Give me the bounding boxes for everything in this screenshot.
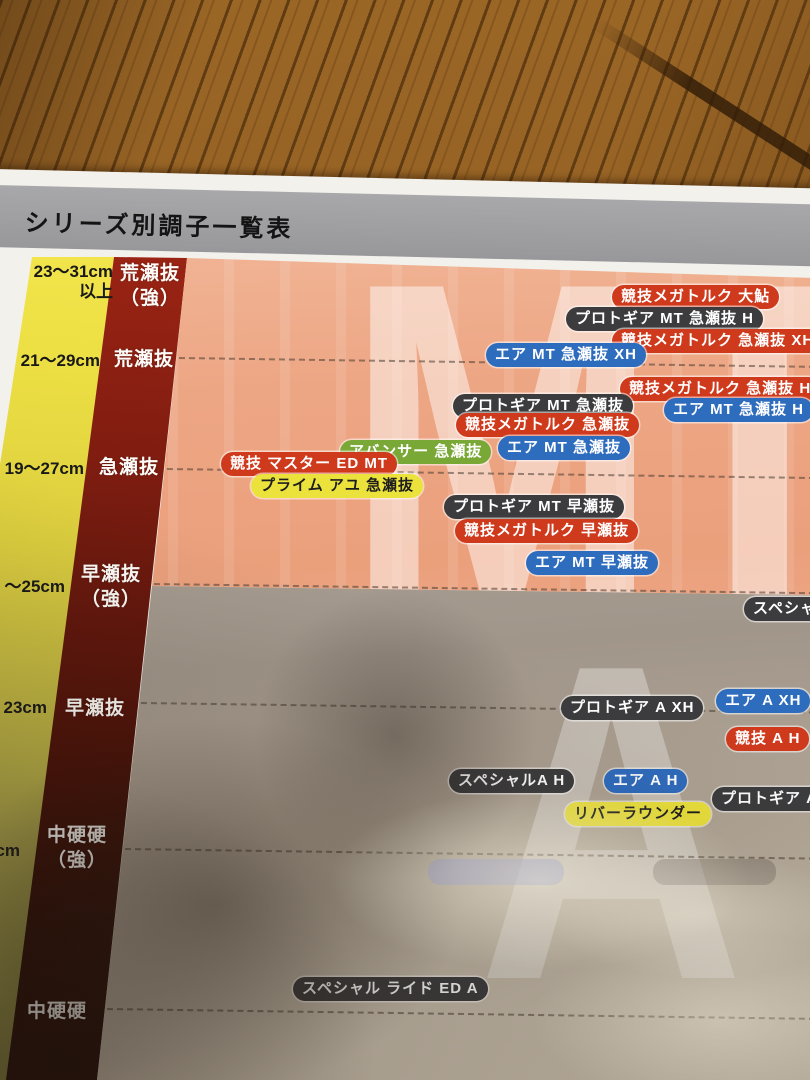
- product-pill: エア MT 早瀬抜: [526, 551, 658, 575]
- product-pill: スペシャル ライド ED A: [293, 977, 488, 1001]
- product-pill: スペシャル: [744, 597, 810, 621]
- product-pill: [428, 859, 564, 885]
- product-pill: プロトギア A: [712, 787, 810, 811]
- category-label: 早瀬抜 （強）: [46, 563, 176, 612]
- product-pill: プロトギア MT 急瀬抜 H: [566, 307, 763, 331]
- product-pill: 競技メガトルク 急瀬抜 H: [620, 377, 810, 401]
- product-pill: 競技メガトルク 早瀬抜: [455, 519, 638, 543]
- category-label: 荒瀬抜 （強）: [85, 262, 215, 311]
- product-pill: 競技 A H: [726, 727, 809, 751]
- product-pill: エア MT 急瀬抜 H: [664, 398, 810, 422]
- product-pill: エア A H: [604, 769, 687, 793]
- product-pill: 競技 マスター ED MT: [221, 452, 397, 476]
- product-pill: エア A XH: [716, 689, 810, 713]
- category-label: 中硬硬: [0, 1000, 122, 1025]
- category-label: 早瀬抜: [30, 697, 160, 722]
- photo-of-chart: シリーズ別調子一覧表 MT A 23〜31cm 以上荒瀬抜 （強）21〜29cm…: [0, 0, 810, 1080]
- product-pill: エア MT 急瀬抜: [498, 436, 630, 460]
- product-pill: プロトギア A XH: [561, 696, 703, 720]
- product-pill: エア MT 急瀬抜 XH: [486, 343, 646, 367]
- product-pill: 競技メガトルク 急瀬抜: [456, 413, 639, 437]
- product-pill: 競技メガトルク 大鮎: [612, 285, 779, 309]
- product-pill: プロトギア MT 早瀬抜: [444, 495, 624, 519]
- category-label: 荒瀬抜: [79, 348, 209, 373]
- category-label: 中硬硬 （強）: [12, 824, 142, 873]
- chart-area: MT A 23〜31cm 以上荒瀬抜 （強）21〜29cm荒瀬抜19〜27cm急…: [0, 0, 810, 1080]
- product-pill: [653, 859, 776, 885]
- product-pill: プライム アユ 急瀬抜: [251, 474, 423, 498]
- product-pill: リバーラウンダー: [565, 802, 711, 826]
- product-pill: スペシャルA H: [449, 769, 574, 793]
